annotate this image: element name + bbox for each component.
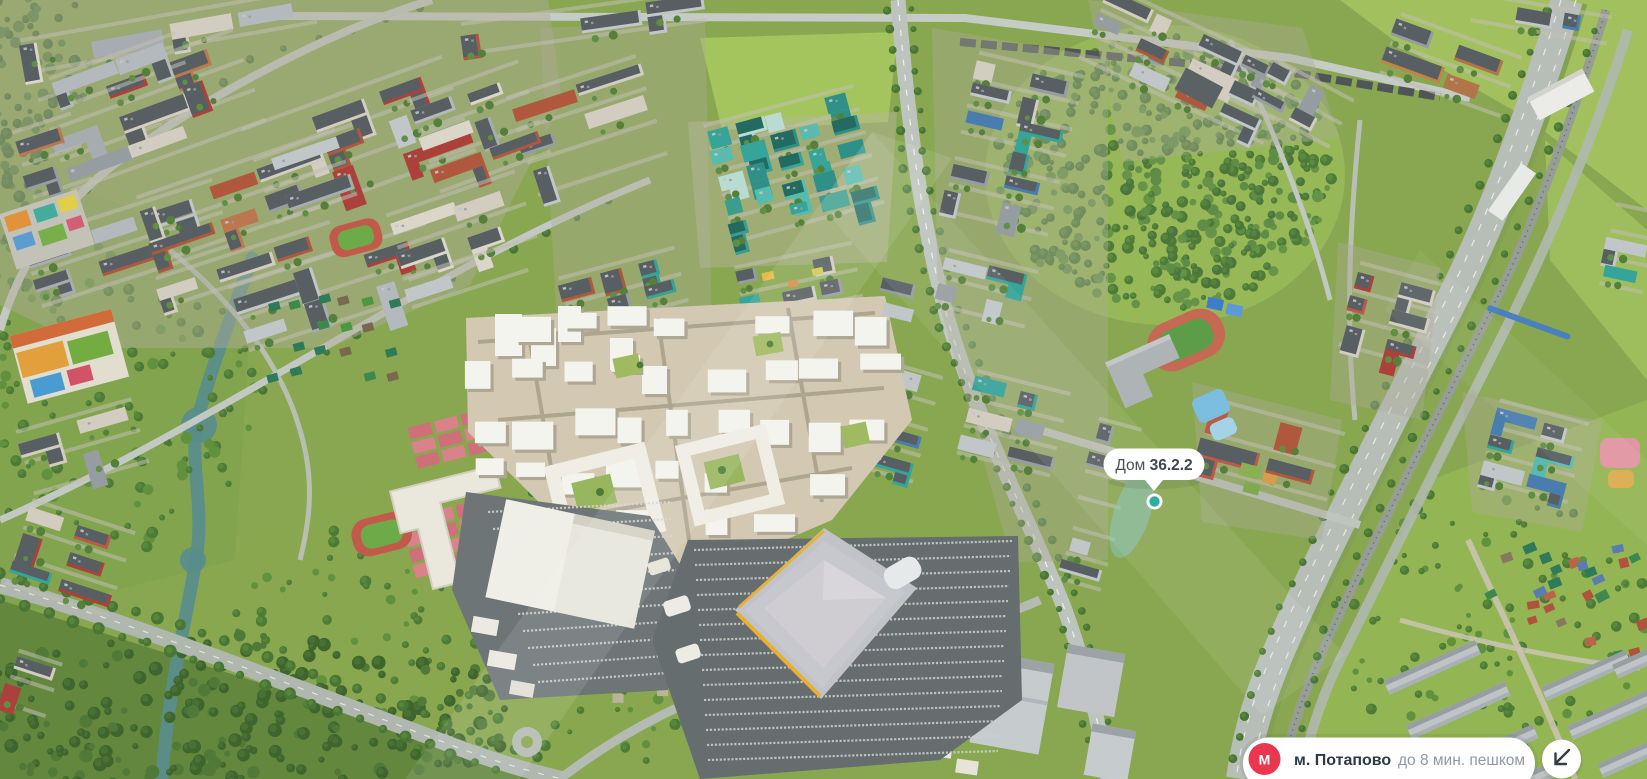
svg-text:до 8 мин. пешком: до 8 мин. пешком bbox=[1398, 752, 1525, 769]
svg-text:Дом 36.2.2: Дом 36.2.2 bbox=[1115, 457, 1192, 474]
svg-text:м. Потапово: м. Потапово bbox=[1294, 752, 1391, 769]
svg-text:М: М bbox=[1259, 752, 1271, 768]
